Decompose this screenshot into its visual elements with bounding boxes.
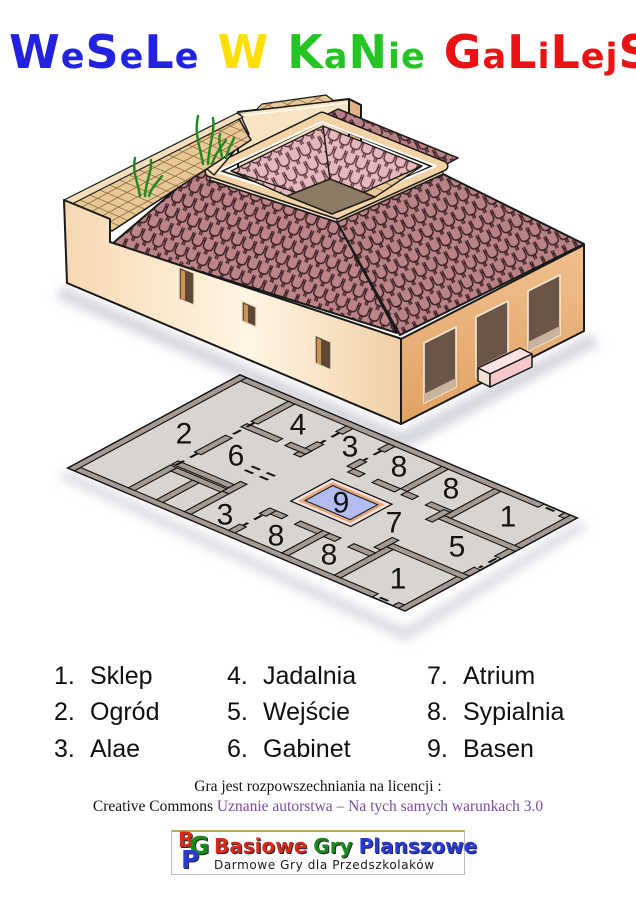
plan-room-label: 1	[500, 501, 517, 534]
legend-item: 8.Sypialnia	[427, 695, 564, 732]
legend: 1.Sklep2.Ogród3.Alae4.Jadalnia5.Wejście6…	[0, 658, 636, 773]
logo-subtitle: Darmowe Gry dla Przedszkolaków	[214, 859, 483, 871]
legend-item: 9.Basen	[427, 731, 564, 768]
legend-number: 3.	[54, 735, 84, 764]
cc-license-link[interactable]: Uznanie autorstwa – Na tych samych warun…	[217, 798, 543, 815]
monogram-letter: P	[181, 845, 199, 874]
legend-number: 9.	[427, 735, 457, 764]
logo-monogram: BGP	[172, 832, 214, 874]
license-text: Gra jest rozpowszechniania na licencji :…	[0, 777, 636, 817]
logo-text: BasioweGryPlanszowe Darmowe Gry dla Prze…	[214, 836, 483, 871]
plan-room-label: 6	[228, 440, 245, 473]
plan-room-label: 9	[333, 487, 350, 520]
publisher-logo: BGP BasioweGryPlanszowe Darmowe Gry dla …	[171, 830, 465, 875]
plan-room-label: 4	[290, 409, 307, 442]
plan-room-label: 7	[386, 507, 403, 540]
legend-number: 6.	[227, 735, 257, 764]
plan-room-label: 1	[390, 563, 407, 596]
legend-number: 2.	[54, 698, 84, 727]
legend-name: Sklep	[90, 662, 153, 691]
plan-room-label: 2	[176, 418, 193, 451]
legend-name: Alae	[90, 735, 140, 764]
legend-column: 1.Sklep2.Ogród3.Alae	[54, 658, 159, 768]
plan-room-label: 3	[217, 499, 234, 532]
legend-number: 1.	[54, 662, 84, 691]
plan-room-label: 3	[342, 431, 359, 464]
legend-item: 1.Sklep	[54, 658, 159, 695]
legend-number: 4.	[227, 662, 257, 691]
logo-word: Basiowe	[214, 834, 307, 858]
title-word: W	[217, 22, 269, 82]
house-illustration	[64, 95, 584, 424]
logo-word: Gry	[313, 834, 352, 858]
legend-item: 2.Ogród	[54, 695, 159, 732]
legend-number: 7.	[427, 662, 457, 691]
legend-name: Sypialnia	[463, 698, 564, 727]
title-word: GaLiLejSKiej	[444, 22, 636, 87]
legend-name: Basen	[463, 735, 534, 764]
legend-name: Atrium	[463, 662, 535, 691]
legend-name: Jadalnia	[263, 662, 356, 691]
title-word: WeSeLe	[9, 22, 199, 87]
license-line2: Creative Commons Uznanie autorstwa – Na …	[0, 797, 636, 817]
legend-item: 3.Alae	[54, 731, 159, 768]
legend-column: 4.Jadalnia5.Wejście6.Gabinet	[227, 658, 356, 768]
logo-word: Planszowe	[359, 834, 478, 858]
legend-number: 5.	[227, 698, 257, 727]
plan-room-label: 8	[443, 473, 460, 506]
page-title: WeSeLeWKaNieGaLiLejSKiej	[0, 22, 636, 87]
title-word: KaNie	[287, 22, 426, 87]
plan-room-label: 8	[321, 539, 338, 572]
legend-number: 8.	[427, 698, 457, 727]
legend-item: 5.Wejście	[227, 695, 356, 732]
plan-room-label: 8	[268, 520, 285, 553]
plan-room-label: 8	[391, 451, 408, 484]
legend-item: 6.Gabinet	[227, 731, 356, 768]
logo-title: BasioweGryPlanszowe	[214, 836, 483, 856]
license-line1: Gra jest rozpowszechniania na licencji :	[0, 777, 636, 797]
plan-room-label: 5	[449, 531, 466, 564]
legend-item: 4.Jadalnia	[227, 658, 356, 695]
legend-column: 7.Atrium8.Sypialnia9.Basen	[427, 658, 564, 768]
legend-item: 7.Atrium	[427, 658, 564, 695]
legend-name: Wejście	[263, 698, 350, 727]
cc-prefix: Creative Commons	[93, 798, 217, 815]
legend-name: Ogród	[90, 698, 159, 727]
legend-name: Gabinet	[263, 735, 351, 764]
